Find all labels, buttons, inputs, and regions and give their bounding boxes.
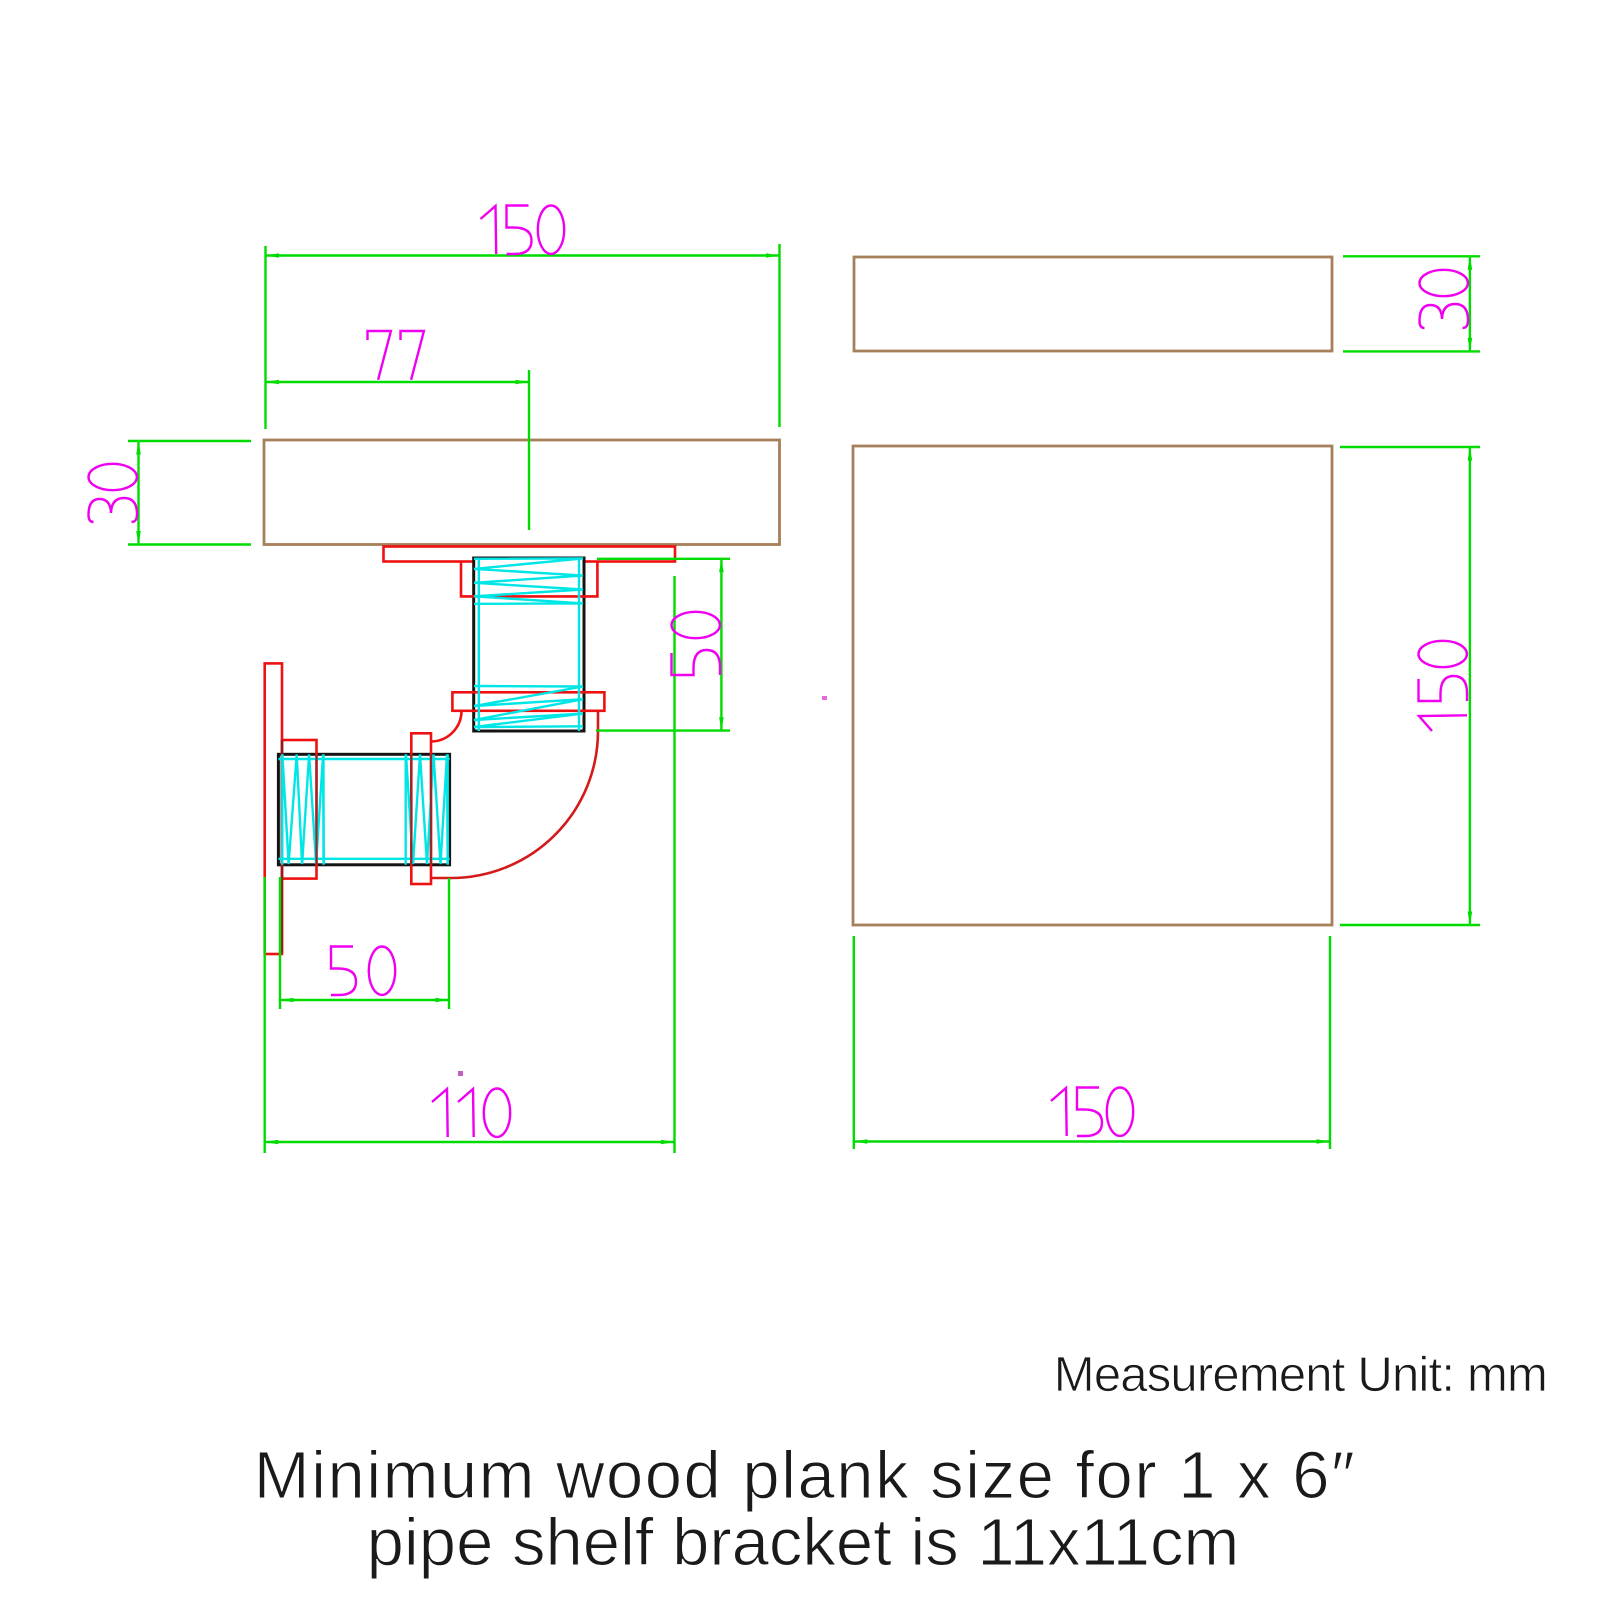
svg-text:Measurement Unit: mm: Measurement Unit: mm [1054,1348,1547,1402]
svg-text:pipe shelf bracket is 11x11cm: pipe shelf bracket is 11x11cm [367,1505,1240,1580]
svg-text:Minimum wood plank size for 1: Minimum wood plank size for 1 x 6″ [254,1438,1356,1513]
